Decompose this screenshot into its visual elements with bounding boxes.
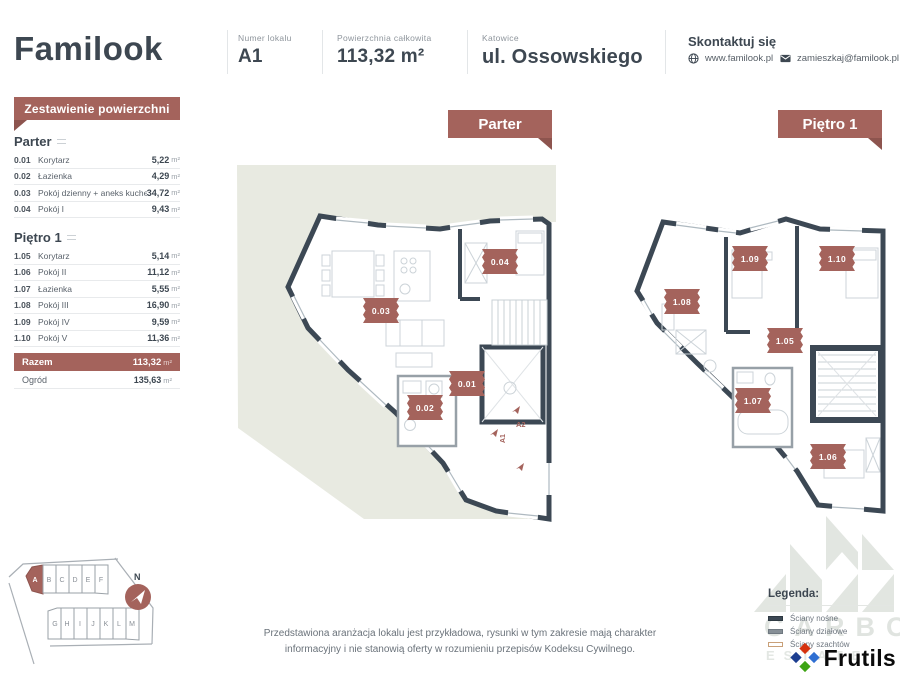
row-room: Pokój II (38, 267, 147, 277)
legend-divider (768, 605, 894, 606)
legend-title: Legenda: (768, 588, 894, 600)
section-name: Parter (14, 134, 52, 149)
unit-letter: C (59, 577, 64, 584)
frutils-diamonds-icon (790, 643, 820, 673)
header-divider (665, 30, 666, 74)
table-row: 0.03 Pokój dzienny + aneks kuchenny 34,7… (14, 185, 180, 202)
row-number: 0.01 (14, 155, 38, 165)
row-unit: m² (171, 251, 180, 260)
city-label: Katowice (482, 33, 643, 43)
site-map-drawing: A B C D E F G H I J (8, 556, 183, 668)
legend-label: Ściany nośne (790, 614, 838, 623)
site-map: A B C D E F G H I J (8, 556, 183, 673)
row-number: 1.07 (14, 284, 38, 294)
row-area: 11,12 (147, 267, 169, 277)
table-row: 1.10 Pokój V 11,36 m² (14, 331, 180, 348)
unit-letter: G (52, 621, 57, 628)
street-value: ul. Ossowskiego (482, 46, 643, 69)
parter-floor-plan: A1 A2 0.01 0.02 0.03 0.04 (228, 163, 568, 523)
row-area: 5,55 (152, 284, 170, 294)
table-row: 1.06 Pokój II 11,12 m² (14, 265, 180, 282)
total-row: Razem 113,32m² (14, 353, 180, 371)
garden-unit: m² (163, 376, 172, 385)
building-row-2: G H I J K L M (48, 608, 139, 640)
room-badge-0-01: 0.01 (449, 371, 485, 396)
table-row: 0.04 Pokój I 9,43 m² (14, 202, 180, 219)
room-badge-0-04: 0.04 (482, 249, 518, 274)
familook-logo: Familook (14, 30, 163, 68)
room-badge-1-05: 1.05 (767, 328, 803, 353)
unit-letter: J (91, 621, 95, 628)
total-unit: m² (163, 358, 172, 367)
room-badge-1-10: 1.10 (819, 246, 855, 271)
legend-item: Ściany działowe (768, 626, 894, 637)
row-area: 4,29 (152, 171, 170, 181)
room-badge-1-09: 1.09 (732, 246, 768, 271)
banner-fold (538, 138, 552, 150)
row-room: Pokój V (38, 333, 147, 343)
row-number: 0.03 (14, 188, 38, 198)
header-divider (322, 30, 323, 74)
row-number: 1.05 (14, 251, 38, 261)
table-row: 1.08 Pokój III 16,90 m² (14, 298, 180, 315)
row-room: Pokój III (38, 300, 147, 310)
row-unit: m² (171, 268, 180, 277)
unit-letter: A (32, 577, 37, 584)
flyer-page: Familook Numer lokalu A1 Powierzchnia ca… (0, 0, 900, 675)
pietro-floor-plan: 1.05 1.06 1.07 1.08 1.09 1.10 (618, 212, 898, 522)
table-row: 1.09 Pokój IV 9,59 m² (14, 314, 180, 331)
legend-label: Ściany działowe (790, 627, 847, 636)
row-room: Korytarz (38, 251, 152, 261)
frutils-logo: Frutils (790, 643, 896, 673)
pietro-banner: Piętro 1 (778, 110, 882, 138)
row-room: Korytarz (38, 155, 152, 165)
header-divider (467, 30, 468, 74)
annotation-a1: A1 (500, 434, 507, 443)
unit-number-block: Numer lokalu A1 (238, 33, 292, 68)
globe-icon (688, 53, 699, 64)
unit-letter: B (47, 577, 52, 584)
total-label: Razem (22, 357, 53, 368)
room-badge-0-02: 0.02 (407, 395, 443, 420)
row-number: 1.09 (14, 317, 38, 327)
unit-letter: E (86, 577, 91, 584)
compass: N (125, 572, 151, 610)
row-number: 1.06 (14, 267, 38, 277)
unit-letter: K (104, 621, 109, 628)
row-unit: m² (171, 334, 180, 343)
parter-plan-drawing: A1 A2 (228, 163, 568, 523)
total-area-label: Powierzchnia całkowita (337, 33, 431, 43)
garden-label: Ogród (22, 375, 47, 385)
email-link[interactable]: zamieszkaj@familook.pl (797, 53, 899, 64)
section-name: Piętro 1 (14, 230, 62, 245)
annotation-a2: A2 (516, 420, 526, 429)
row-room: Łazienka (38, 284, 152, 294)
area-table-title: Zestawienie powierzchni (24, 102, 169, 116)
unit-letter: M (129, 621, 135, 628)
room-badge-0-03: 0.03 (363, 298, 399, 323)
unit-number-label: Numer lokalu (238, 33, 292, 43)
compass-n-label: N (134, 572, 141, 582)
table-row: 0.02 Łazienka 4,29 m² (14, 169, 180, 186)
load-bearing-wall-swatch (768, 616, 783, 621)
parter-banner-label: Parter (478, 116, 521, 133)
total-area-block: Powierzchnia całkowita 113,32 m² (337, 33, 431, 68)
banner-fold (868, 138, 882, 150)
row-unit: m² (171, 317, 180, 326)
row-unit: m² (171, 284, 180, 293)
partition-wall-swatch (768, 629, 783, 634)
frutils-wordmark: Frutils (824, 645, 896, 672)
row-room: Łazienka (38, 171, 152, 181)
disclaimer-line2: informacyjny i nie stanowią oferty w roz… (250, 642, 670, 658)
row-number: 1.08 (14, 300, 38, 310)
row-number: 0.02 (14, 171, 38, 181)
parter-banner: Parter (448, 110, 552, 138)
row-number: 1.10 (14, 333, 38, 343)
row-unit: m² (171, 301, 180, 310)
row-area: 9,59 (152, 317, 170, 327)
table-row: 0.01 Korytarz 5,22 m² (14, 152, 180, 169)
address-block: Katowice ul. Ossowskiego (482, 33, 643, 69)
disclaimer-line1: Przedstawiona aranżacja lokalu jest przy… (250, 626, 670, 642)
row-unit: m² (171, 205, 180, 214)
website-row: www.familook.pl (688, 53, 773, 64)
row-area: 5,22 (152, 155, 170, 165)
unit-number-value: A1 (238, 46, 292, 68)
section-marker-icon (67, 235, 76, 240)
shaft-wall-swatch (768, 642, 783, 647)
unit-letter: D (72, 577, 77, 584)
row-unit: m² (171, 155, 180, 164)
row-area: 5,14 (152, 251, 170, 261)
section-marker-icon (57, 139, 66, 144)
room-badge-1-08: 1.08 (664, 289, 700, 314)
pietro-banner-label: Piętro 1 (802, 116, 857, 133)
legend-item: Ściany nośne (768, 613, 894, 624)
disclaimer: Przedstawiona aranżacja lokalu jest przy… (250, 626, 670, 657)
header-divider (227, 30, 228, 74)
building-row-1: A B C D E F (26, 565, 108, 594)
row-room: Pokój IV (38, 317, 152, 327)
row-room: Pokój dzienny + aneks kuchenny (38, 188, 147, 198)
row-area: 34,72 (147, 188, 170, 198)
contact-title: Skontaktuj się (688, 34, 776, 49)
room-badge-1-07: 1.07 (735, 388, 771, 413)
row-room: Pokój I (38, 204, 152, 214)
row-number: 0.04 (14, 204, 38, 214)
unit-letter: H (64, 621, 69, 628)
area-table-banner: Zestawienie powierzchni (14, 97, 180, 120)
area-table: Parter 0.01 Korytarz 5,22 m² 0.02 Łazien… (14, 126, 180, 389)
row-area: 9,43 (152, 204, 170, 214)
unit-letter: L (117, 621, 121, 628)
section-heading-pietro: Piętro 1 (14, 230, 180, 245)
email-row: zamieszkaj@familook.pl (780, 53, 899, 64)
room-badge-1-06: 1.06 (810, 444, 846, 469)
section-heading-parter: Parter (14, 134, 180, 149)
row-unit: m² (171, 172, 180, 181)
garden-value: 135,63 (134, 375, 162, 385)
unit-letter: I (79, 621, 81, 628)
row-unit: m² (171, 188, 180, 197)
row-area: 11,36 (147, 333, 169, 343)
total-area-value: 113,32 m² (337, 46, 431, 68)
garden-row: Ogród 135,63m² (14, 371, 180, 389)
total-value: 113,32 (133, 357, 162, 368)
website-link[interactable]: www.familook.pl (705, 53, 773, 64)
table-row: 1.07 Łazienka 5,55 m² (14, 281, 180, 298)
unit-letter: F (99, 577, 103, 584)
row-area: 16,90 (147, 300, 170, 310)
mail-icon (780, 53, 791, 64)
table-row: 1.05 Korytarz 5,14 m² (14, 248, 180, 265)
